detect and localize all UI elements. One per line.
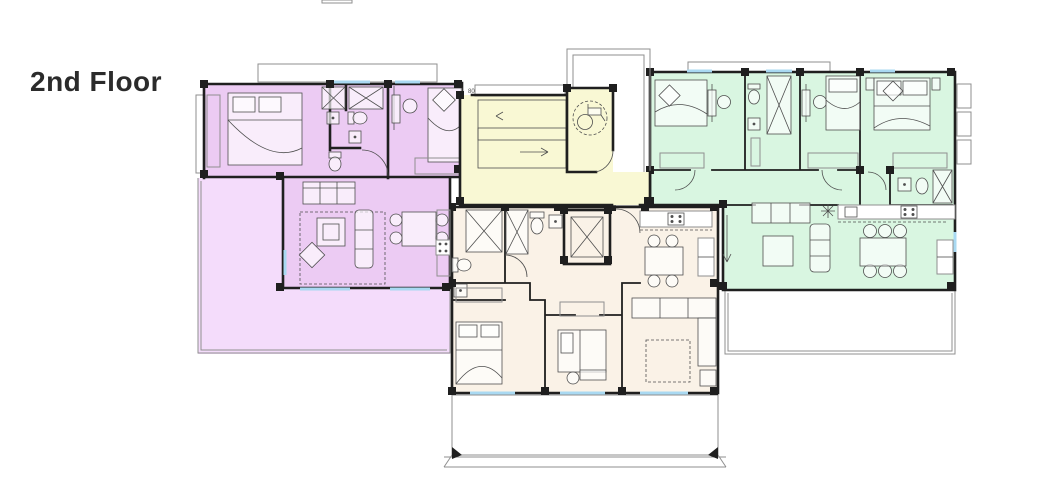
- terrace: [725, 290, 955, 354]
- pergola: [258, 64, 437, 82]
- roof-fragment: [322, 0, 352, 3]
- apartment-left: [196, 64, 462, 354]
- apartment-bottom: [444, 203, 726, 467]
- bed-icon: [456, 322, 502, 384]
- balcony: [444, 395, 726, 467]
- bed-icon: [866, 78, 940, 130]
- dining-table-icon: [860, 225, 907, 278]
- exterior-units: [957, 84, 971, 164]
- floor-plan-page: 2nd Floor: [0, 0, 1059, 477]
- dimension-label: 80: [468, 89, 475, 95]
- floor-plan-drawing: 80: [0, 0, 1059, 477]
